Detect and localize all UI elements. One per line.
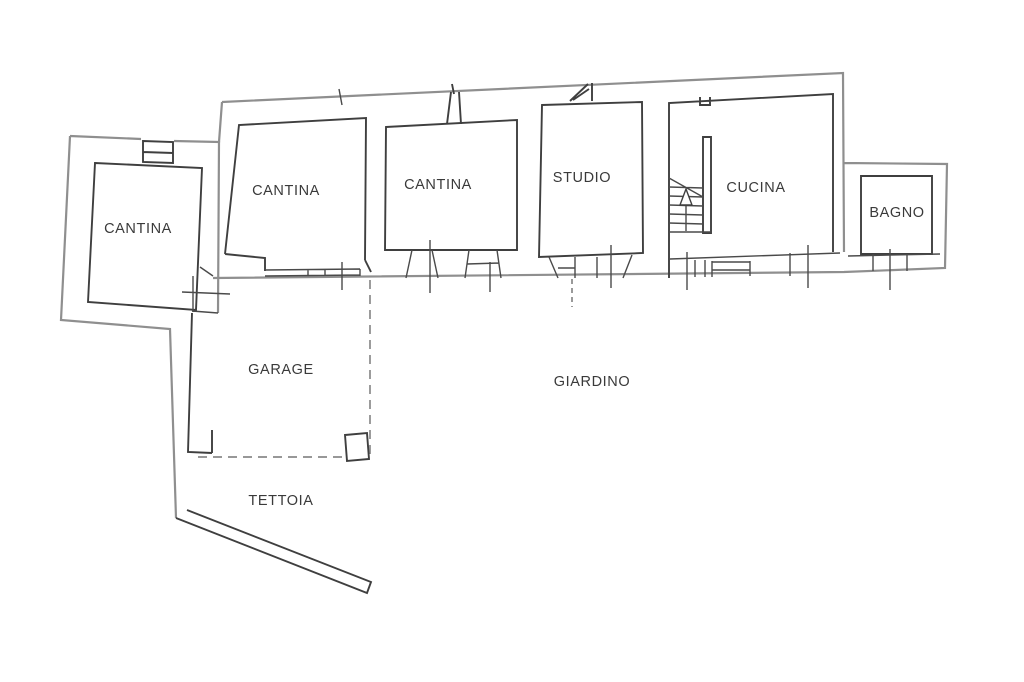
label-tettoia: TETTOIA xyxy=(248,493,313,509)
floor-plan-drawing: CANTINA CANTINA CANTINA STUDIO CUCINA BA… xyxy=(0,0,1024,682)
label-studio: STUDIO xyxy=(553,170,611,186)
label-bagno: BAGNO xyxy=(869,205,924,221)
label-cantina-left: CANTINA xyxy=(104,221,172,237)
garage-pillar xyxy=(345,433,369,461)
label-garage: GARAGE xyxy=(248,362,314,378)
label-cantina-right: CANTINA xyxy=(404,177,472,193)
canvas-background xyxy=(0,0,1024,682)
floor-plan-canvas: CANTINA CANTINA CANTINA STUDIO CUCINA BA… xyxy=(0,0,1024,682)
label-cucina: CUCINA xyxy=(726,180,785,196)
label-giardino: GIARDINO xyxy=(554,374,631,390)
label-cantina-mid: CANTINA xyxy=(252,183,320,199)
